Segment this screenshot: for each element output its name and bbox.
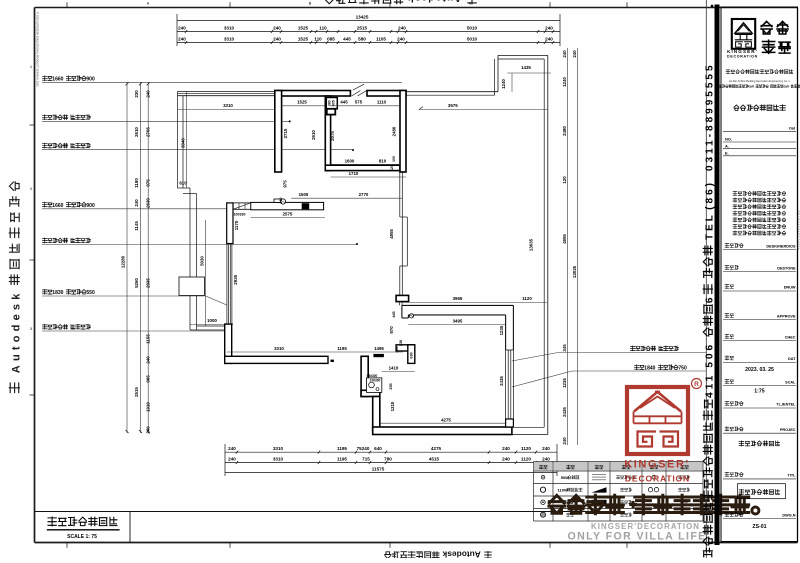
svg-text:1155: 1155 bbox=[146, 334, 151, 344]
svg-text:965: 965 bbox=[146, 375, 151, 383]
svg-text:240: 240 bbox=[572, 50, 577, 58]
svg-text:445: 445 bbox=[340, 100, 348, 105]
svg-text:1410: 1410 bbox=[389, 365, 399, 370]
svg-text:PROJEC: PROJEC bbox=[780, 428, 796, 432]
svg-text:1435: 1435 bbox=[521, 65, 531, 70]
svg-text:240: 240 bbox=[228, 457, 236, 462]
svg-text:2515: 2515 bbox=[134, 387, 139, 397]
svg-text:810: 810 bbox=[379, 158, 387, 163]
svg-text:506: 506 bbox=[705, 342, 716, 368]
svg-text:240: 240 bbox=[178, 25, 186, 30]
svg-text:Autodesk: Autodesk bbox=[442, 550, 481, 559]
svg-text:715: 715 bbox=[362, 457, 370, 462]
svg-text:A.: A. bbox=[725, 143, 729, 148]
svg-text:2023. 03. 25: 2023. 03. 25 bbox=[745, 367, 774, 373]
svg-text:0311-88995555: 0311-88995555 bbox=[705, 62, 716, 171]
svg-text:1180: 1180 bbox=[134, 178, 139, 188]
svg-text:CHEC: CHEC bbox=[785, 336, 796, 340]
svg-text:240: 240 bbox=[502, 457, 510, 462]
svg-text:KINGSER': KINGSER' bbox=[727, 49, 758, 54]
svg-text:240: 240 bbox=[178, 36, 186, 41]
svg-text:240: 240 bbox=[398, 25, 406, 30]
svg-text:5010: 5010 bbox=[467, 25, 478, 30]
svg-text:970: 970 bbox=[389, 326, 394, 334]
svg-text:1525: 1525 bbox=[297, 100, 307, 105]
svg-text:50W: 50W bbox=[561, 475, 569, 480]
svg-text:5260: 5260 bbox=[134, 278, 139, 288]
svg-text:2610: 2610 bbox=[311, 130, 316, 140]
svg-text:100300: 100300 bbox=[370, 378, 381, 382]
svg-text:1: 1 bbox=[30, 65, 32, 69]
svg-text:1505: 1505 bbox=[299, 192, 309, 197]
svg-text:DESTONE: DESTONE bbox=[777, 267, 796, 271]
svg-text:Dat: Dat bbox=[789, 127, 796, 131]
svg-text:110: 110 bbox=[314, 36, 322, 41]
svg-text:4275: 4275 bbox=[431, 446, 442, 451]
svg-text:230: 230 bbox=[399, 340, 403, 346]
svg-text:2515: 2515 bbox=[357, 25, 368, 30]
svg-text:1105: 1105 bbox=[376, 36, 386, 41]
svg-text:2: 2 bbox=[30, 187, 32, 191]
svg-text:3310: 3310 bbox=[273, 446, 284, 451]
svg-text:1145: 1145 bbox=[134, 221, 139, 231]
svg-text:1830: 1830 bbox=[52, 290, 63, 296]
svg-text:550: 550 bbox=[86, 290, 95, 296]
svg-text:NO.: NO. bbox=[725, 136, 732, 141]
svg-text:E.: E. bbox=[725, 150, 729, 155]
svg-text:5030: 5030 bbox=[200, 256, 205, 266]
svg-text:2575: 2575 bbox=[283, 211, 293, 216]
svg-text:400: 400 bbox=[395, 346, 399, 352]
svg-text:3: 3 bbox=[30, 327, 32, 331]
svg-text:1240: 1240 bbox=[501, 79, 506, 89]
svg-text:230: 230 bbox=[134, 90, 139, 98]
svg-text:1195: 1195 bbox=[337, 446, 347, 451]
svg-text:3310: 3310 bbox=[224, 36, 235, 41]
svg-text:DAT: DAT bbox=[788, 357, 796, 361]
svg-text:2935: 2935 bbox=[233, 274, 238, 284]
svg-text:2770: 2770 bbox=[359, 192, 369, 197]
svg-text:5010: 5010 bbox=[467, 36, 478, 41]
svg-text:APPROVE: APPROVE bbox=[777, 315, 796, 319]
svg-text:1:75: 1:75 bbox=[754, 389, 764, 395]
svg-text:445: 445 bbox=[392, 311, 396, 317]
svg-text:240: 240 bbox=[146, 426, 151, 434]
svg-text:110: 110 bbox=[319, 25, 327, 30]
svg-text:Autodesk: Autodesk bbox=[11, 289, 23, 373]
svg-text:ONLY FOR VILLA LIFE.: ONLY FOR VILLA LIFE. bbox=[567, 530, 711, 542]
svg-text:3965: 3965 bbox=[453, 296, 463, 301]
svg-text:DECORATION: DECORATION bbox=[727, 54, 758, 58]
svg-text:(86): (86) bbox=[705, 180, 716, 210]
svg-text:1195: 1195 bbox=[337, 346, 347, 351]
svg-text:DECORATION: DECORATION bbox=[625, 474, 690, 484]
svg-text:2705: 2705 bbox=[146, 127, 151, 137]
svg-text:culr: culr bbox=[748, 85, 755, 89]
svg-text:DRUW: DRUW bbox=[784, 286, 796, 290]
svg-text:1000: 1000 bbox=[207, 318, 217, 323]
svg-text:2480: 2480 bbox=[392, 126, 397, 136]
svg-text:120: 120 bbox=[390, 165, 394, 171]
svg-text:100: 100 bbox=[279, 198, 283, 204]
svg-text:1235: 1235 bbox=[499, 325, 504, 335]
svg-text:100330: 100330 bbox=[234, 213, 246, 217]
svg-text:DWG.N: DWG.N bbox=[782, 514, 795, 518]
svg-text:1525: 1525 bbox=[298, 25, 309, 30]
svg-text:3310: 3310 bbox=[223, 103, 233, 108]
svg-text:2935: 2935 bbox=[146, 278, 151, 288]
svg-text:13035: 13035 bbox=[529, 238, 534, 251]
svg-text:3495: 3495 bbox=[453, 318, 463, 323]
svg-text:780: 780 bbox=[384, 457, 392, 462]
svg-text:12280: 12280 bbox=[121, 255, 126, 268]
svg-text:1310: 1310 bbox=[390, 401, 395, 411]
svg-text:085: 085 bbox=[327, 36, 335, 41]
svg-text:240: 240 bbox=[545, 36, 553, 41]
svg-text:DESIGNERDIOS: DESIGNERDIOS bbox=[766, 245, 796, 249]
svg-text:120: 120 bbox=[562, 176, 567, 184]
svg-text:75240: 75240 bbox=[357, 446, 370, 451]
svg-text:2480: 2480 bbox=[562, 126, 567, 136]
svg-text:culr: culr bbox=[784, 85, 791, 89]
svg-text:1310: 1310 bbox=[146, 402, 151, 412]
svg-text:240: 240 bbox=[146, 356, 151, 364]
svg-text:255: 255 bbox=[389, 383, 393, 389]
svg-text:575: 575 bbox=[355, 100, 363, 105]
svg-text:345: 345 bbox=[562, 344, 567, 352]
svg-text:11575: 11575 bbox=[372, 467, 385, 472]
svg-text:240: 240 bbox=[397, 36, 405, 41]
svg-text:© 2023 AUTODESK EDUCATIONAL PR: © 2023 AUTODESK EDUCATIONAL PRODUCT VERS… bbox=[36, 12, 40, 87]
svg-text:900: 900 bbox=[86, 203, 95, 209]
svg-text:SCAL: SCAL bbox=[785, 381, 796, 385]
svg-text:411: 411 bbox=[705, 373, 716, 398]
svg-text:3310: 3310 bbox=[273, 457, 284, 462]
svg-text:2610: 2610 bbox=[134, 127, 139, 137]
svg-text:4855: 4855 bbox=[389, 229, 394, 239]
svg-text:240: 240 bbox=[273, 36, 281, 41]
svg-text:240: 240 bbox=[562, 437, 567, 445]
svg-text:240: 240 bbox=[545, 25, 553, 30]
svg-text:640: 640 bbox=[374, 446, 382, 451]
svg-text:1660: 1660 bbox=[52, 77, 63, 83]
svg-text:Autodesk: Autodesk bbox=[407, 0, 461, 3]
svg-text:1195: 1195 bbox=[337, 457, 347, 462]
svg-text:13035: 13035 bbox=[572, 265, 577, 278]
svg-text:240: 240 bbox=[502, 446, 510, 451]
svg-text:240: 240 bbox=[228, 446, 236, 451]
svg-text:TEL: TEL bbox=[705, 212, 716, 240]
svg-text:1120: 1120 bbox=[521, 457, 531, 462]
svg-text:He.Bei.JinShe Building Decorat: He.Bei.JinShe Building Decoration Engine… bbox=[729, 79, 791, 83]
svg-text:1710: 1710 bbox=[349, 171, 359, 176]
svg-text:4515: 4515 bbox=[429, 457, 440, 462]
svg-text:110W: 110W bbox=[558, 488, 568, 493]
svg-text:2435: 2435 bbox=[499, 376, 504, 386]
svg-text:1525: 1525 bbox=[298, 36, 309, 41]
svg-text:900: 900 bbox=[86, 77, 95, 83]
svg-text:2075: 2075 bbox=[330, 131, 335, 141]
svg-text:1600: 1600 bbox=[345, 158, 355, 163]
svg-text:1170: 1170 bbox=[234, 220, 239, 230]
svg-text:580: 580 bbox=[358, 36, 366, 41]
svg-text:4275: 4275 bbox=[441, 417, 451, 422]
svg-text:3575: 3575 bbox=[448, 103, 458, 108]
svg-text:1240: 1240 bbox=[562, 77, 567, 87]
svg-text:240: 240 bbox=[562, 50, 567, 58]
svg-text:1120: 1120 bbox=[522, 296, 532, 301]
svg-text:240: 240 bbox=[542, 457, 550, 462]
svg-text:ZS-01: ZS-01 bbox=[752, 524, 766, 530]
svg-text:3310: 3310 bbox=[224, 25, 235, 30]
svg-text:13425: 13425 bbox=[356, 14, 369, 19]
svg-text:TITL: TITL bbox=[787, 474, 796, 478]
svg-text:3310: 3310 bbox=[274, 346, 284, 351]
svg-text:1495: 1495 bbox=[374, 346, 384, 351]
svg-text:1660: 1660 bbox=[52, 203, 63, 209]
svg-text:2715: 2715 bbox=[283, 128, 288, 138]
svg-text:6: 6 bbox=[705, 295, 716, 304]
svg-text:2435: 2435 bbox=[562, 407, 567, 417]
svg-text:100: 100 bbox=[392, 156, 396, 162]
svg-text:1110: 1110 bbox=[377, 100, 387, 105]
svg-text:KINGSER': KINGSER' bbox=[624, 459, 690, 471]
svg-text:240: 240 bbox=[273, 25, 281, 30]
svg-text:1120: 1120 bbox=[521, 446, 531, 451]
svg-text:630: 630 bbox=[409, 352, 413, 358]
svg-text:975: 975 bbox=[146, 179, 151, 187]
svg-text:240: 240 bbox=[146, 90, 151, 98]
svg-text:4 1 B 2 C 3 D 4 E 5 F 6 G 7 H: 4 1 B 2 C 3 D 4 E 5 F 6 G 7 H 8 bbox=[796, 210, 800, 250]
svg-text:TL.IENTEL: TL.IENTEL bbox=[776, 403, 796, 407]
svg-text:445: 445 bbox=[343, 36, 351, 41]
svg-text:1235: 1235 bbox=[562, 378, 567, 388]
svg-text:2630: 2630 bbox=[146, 198, 151, 208]
svg-text:4855: 4855 bbox=[562, 234, 567, 244]
svg-text:240: 240 bbox=[134, 199, 139, 207]
svg-text:240: 240 bbox=[542, 446, 550, 451]
svg-text:405: 405 bbox=[332, 100, 336, 106]
svg-text:R: R bbox=[694, 381, 699, 388]
svg-text:SCALE 1: 75: SCALE 1: 75 bbox=[67, 534, 97, 540]
svg-text:975: 975 bbox=[283, 180, 288, 188]
